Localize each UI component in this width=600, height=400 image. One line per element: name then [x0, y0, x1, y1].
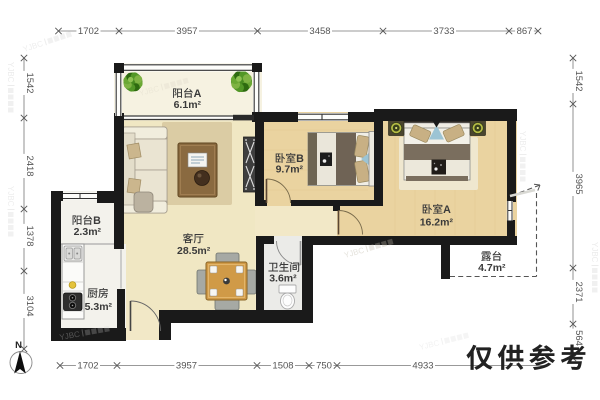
- svg-text:3733: 3733: [433, 26, 454, 37]
- svg-text:N: N: [15, 340, 22, 351]
- svg-text:YJBC: YJBC: [6, 186, 15, 207]
- svg-text:750: 750: [316, 361, 332, 372]
- svg-text:2.3m²: 2.3m²: [74, 226, 102, 238]
- svg-text:28.5m²: 28.5m²: [177, 245, 211, 257]
- svg-text:YJBC: YJBC: [590, 242, 599, 263]
- svg-text:2418: 2418: [24, 155, 35, 176]
- svg-text:3957: 3957: [176, 26, 197, 37]
- svg-text:3.6m²: 3.6m²: [269, 272, 297, 284]
- svg-text:5.3m²: 5.3m²: [85, 301, 113, 313]
- svg-text:4.7m²: 4.7m²: [478, 262, 506, 274]
- svg-text:3965: 3965: [573, 173, 584, 194]
- svg-text:A: A: [443, 204, 451, 216]
- svg-text:867: 867: [517, 26, 533, 37]
- svg-text:1702: 1702: [78, 26, 99, 37]
- svg-text:3957: 3957: [176, 361, 197, 372]
- svg-text:4933: 4933: [412, 361, 433, 372]
- svg-text:2371: 2371: [573, 281, 584, 302]
- svg-text:1542: 1542: [573, 70, 584, 91]
- svg-text:3104: 3104: [24, 295, 35, 316]
- svg-text:6.1m²: 6.1m²: [174, 99, 202, 111]
- svg-text:1378: 1378: [24, 225, 35, 246]
- svg-text:3458: 3458: [309, 26, 330, 37]
- svg-text:16.2m²: 16.2m²: [420, 216, 454, 228]
- svg-text:1542: 1542: [24, 72, 35, 93]
- svg-text:1508: 1508: [272, 361, 293, 372]
- svg-text:1702: 1702: [77, 361, 98, 372]
- svg-text:YJBC: YJBC: [6, 62, 15, 83]
- svg-text:9.7m²: 9.7m²: [276, 163, 304, 175]
- svg-text:YJBC: YJBC: [518, 131, 527, 152]
- svg-text:564: 564: [573, 330, 584, 346]
